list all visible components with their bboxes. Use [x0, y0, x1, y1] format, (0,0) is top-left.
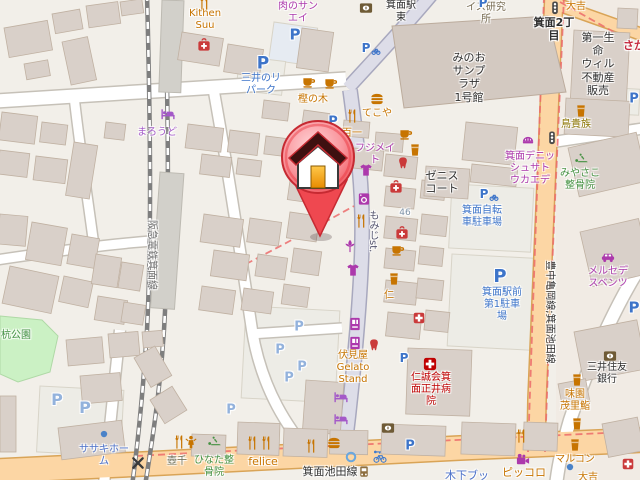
map-label-line: 46 [399, 208, 410, 219]
dentist-icon [396, 156, 411, 171]
vending-machine-icon [348, 336, 363, 351]
traffic-signal-icon [548, 1, 563, 16]
map-label-line: みやさこ [560, 168, 600, 180]
clothes-icon [346, 263, 361, 278]
map-label-line: 目 [534, 29, 575, 42]
map-label-line: 東 [386, 12, 416, 24]
map-label-line: ム [79, 456, 129, 468]
parking-icon: P [51, 392, 63, 408]
map-label-line: 命 [582, 44, 615, 57]
map-label: みやさこ整骨院 [560, 168, 600, 192]
map-label: マルコン [555, 454, 595, 466]
map-label-line: 鳥貴族 [561, 119, 591, 131]
map-label-line: 1号館 [453, 91, 486, 104]
map-label-line: ラザ [453, 77, 486, 90]
map-label: 仁 [384, 290, 394, 302]
map-label: 三井住友銀行 [587, 362, 627, 386]
map-label-line: 販売 [582, 84, 615, 97]
map-label-line: ゼニス [426, 169, 459, 182]
map-label-line: まろうど [137, 127, 177, 139]
map-label-line: 茂里鮨 [560, 401, 590, 413]
parking-icon: P [629, 301, 640, 316]
map-label-line: 木下ブッ [445, 469, 489, 480]
fountain-icon [344, 450, 359, 465]
parking-icon: P [400, 352, 409, 364]
restaurant-icon [514, 429, 529, 444]
map-label-line: みのお [453, 51, 486, 64]
map-label-line: 大吉 [566, 1, 586, 13]
map-label: イス研究所 [466, 2, 506, 26]
cafe-icon [399, 126, 414, 141]
cafe-icon [324, 75, 339, 90]
map-label: 味園茂里鮨 [560, 389, 590, 413]
map-label-line: 整骨院 [560, 180, 600, 192]
map-label: 第一生命ウィル不動産販売 [582, 31, 615, 97]
parking-icon: P [257, 56, 269, 73]
bank-icon [381, 421, 396, 436]
cinema-icon [516, 453, 531, 468]
railway-crossing-icon [131, 456, 146, 471]
drink-icon [568, 438, 583, 453]
map-label: 大吉 [566, 1, 586, 13]
bus-stop-icon [357, 465, 372, 480]
vending-machine-icon [348, 317, 363, 332]
parking-icon: P [290, 28, 301, 43]
hotel-icon [161, 107, 176, 122]
clinic-icon [622, 458, 635, 471]
bicycle-icon [490, 193, 499, 202]
cafe-icon [391, 242, 406, 257]
drink-icon [387, 272, 402, 287]
map-label-line: Stand [337, 374, 370, 386]
map-label-line: Kithen [189, 8, 221, 20]
map-label: ササキホーム [79, 444, 129, 468]
map-label-line: メルセデ [588, 266, 628, 278]
parking-icon: P [479, 0, 488, 9]
map-label-line: 箕面駅前 [482, 287, 522, 299]
traffic-signal-icon [545, 131, 560, 146]
map-label-line: ササキホー [79, 444, 129, 456]
parking-bicycle-icon: P [480, 188, 489, 200]
map-label: さか [623, 39, 640, 52]
map-label-line: スベンツ [588, 278, 628, 290]
map-label: 箕面駅東 [386, 0, 416, 24]
bakery-icon [521, 133, 536, 148]
map-label-line: さか [623, 39, 640, 52]
restaurant-icon [245, 436, 260, 451]
map-label: 仁誠会箕面正井病院 [411, 372, 451, 408]
map-label: 大吉 [578, 472, 598, 480]
map-label-line: エイ [278, 13, 318, 25]
map-label-line: 銀行 [587, 374, 627, 386]
map-label-line: シュサト [505, 163, 555, 175]
parking-icon: P [629, 93, 639, 106]
map-label: みのおサンプラザ1号館 [453, 51, 486, 104]
cafe-icon [302, 74, 317, 89]
map-label-line: 仁 [384, 290, 394, 302]
fastfood-icon [327, 436, 342, 451]
map-label: 伏見屋GelatoStand [337, 350, 370, 386]
pharmacy-icon [389, 180, 404, 195]
map-label: 杭公園 [1, 330, 31, 342]
map-label-line: 場 [482, 311, 522, 323]
map-label-line: ウィル [582, 57, 615, 70]
map-label: 三井のリパーク [241, 73, 281, 97]
map-label-line: マルコン [555, 454, 595, 466]
person-icon [184, 435, 199, 450]
parking-icon: P [294, 321, 304, 334]
map-label: 箕面デニッシュサトウカエデ [505, 151, 555, 187]
drink-icon [570, 417, 585, 432]
map-label-line: 阪急電鉄箕面線 [145, 220, 157, 290]
parking-icon: P [297, 361, 307, 374]
map-label-line: 箕面池田線 [303, 465, 358, 478]
map-label: 箕面駅前第1駐車場 [482, 287, 522, 323]
map-label-line: 大吉 [578, 472, 598, 480]
hotel-icon [334, 412, 349, 427]
map-label-line: 三井のリ [241, 73, 281, 85]
pharmacy-icon [395, 226, 410, 241]
pharmacy-icon [197, 38, 212, 53]
map-label-line: ウカエデ [505, 175, 555, 187]
parking-icon: P [284, 372, 294, 385]
map-label-line: ひなた整 [194, 455, 234, 467]
map-label: felice [248, 455, 278, 468]
hospital-icon [423, 357, 438, 372]
map-label: 壺千 [167, 456, 187, 468]
map-label-line: サンプ [453, 64, 486, 77]
parking-bicycle-icon: P [362, 42, 371, 54]
dot-icon [97, 427, 112, 442]
map-label-line: 壺千 [167, 456, 187, 468]
map-label: 木下ブッ [445, 469, 489, 480]
map-label: ピッコロ [502, 466, 546, 479]
restaurant-icon [197, 0, 212, 11]
house-location-pin[interactable] [263, 96, 373, 242]
massage-icon [207, 435, 222, 450]
map-label-line: Suu [189, 20, 221, 32]
map-label: 箕面池田線 [303, 465, 358, 478]
massage-icon [574, 152, 589, 167]
restaurant-icon [304, 439, 319, 454]
parking-icon: P [226, 404, 236, 417]
map-label-line: 仁誠会箕 [411, 372, 451, 384]
map-label: 豊中亀岡線;箕面池田線 [543, 260, 555, 363]
map-label: 箕面自転車駐車場 [462, 205, 502, 229]
drink-icon [574, 104, 589, 119]
map-label-line: 所 [466, 14, 506, 26]
car-dealer-icon [601, 250, 616, 265]
parking-icon: P [405, 440, 415, 453]
map-label-line: イス研究 [466, 2, 506, 14]
parking-icon: P [275, 344, 285, 357]
bicycle-icon [372, 47, 381, 56]
map-label: KithenSuu [189, 8, 221, 32]
map-label-line: felice [248, 455, 278, 468]
bank-icon [603, 349, 618, 364]
map-label-line: 車駐車場 [462, 217, 502, 229]
hotel-icon [334, 390, 349, 405]
map-label-line: コート [426, 182, 459, 195]
map-label-line: ピッコロ [502, 466, 546, 479]
map-label-line: 豊中亀岡線;箕面池田線 [543, 260, 555, 363]
drink-icon [570, 373, 585, 388]
map-label-line: 箕面2丁 [534, 16, 575, 29]
bicycle-rental-icon [373, 450, 388, 465]
map-label: 箕面2丁目 [534, 16, 575, 42]
map-label-line: 味園 [560, 389, 590, 401]
map-label: まろうど [137, 127, 177, 139]
restaurant-icon [172, 435, 187, 450]
parking-icon: P [493, 268, 506, 286]
map-label-line: 肉のサン [278, 1, 318, 13]
drink-icon [408, 143, 423, 158]
map-label-line: 第一生 [582, 31, 615, 44]
map-label: 鳥貴族 [561, 119, 591, 131]
map-label: ひなた整骨院 [194, 455, 234, 479]
map-label-line: 不動産 [582, 71, 615, 84]
map-label-line: 院 [411, 396, 451, 408]
map-label: 阪急電鉄箕面線 [145, 220, 157, 290]
map-label-line: 骨院 [194, 467, 234, 479]
map-label-line: 箕面自転 [462, 205, 502, 217]
map-label-line: 杭公園 [1, 330, 31, 342]
map-label-line: 伏見屋 [337, 350, 370, 362]
map-label-line: 第1駐車 [482, 299, 522, 311]
map-label-line: 三井住友 [587, 362, 627, 374]
map-label: ゼニスコート [426, 169, 459, 195]
map-label: 肉のサンエイ [278, 1, 318, 25]
map-canvas[interactable]: KithenSuu肉のサンエイ箕面駅東イス研究所大吉箕面2丁目第一生命ウィル不動… [0, 0, 640, 480]
dentist-icon [367, 338, 382, 353]
parking-icon: P [79, 400, 91, 416]
dot-icon [563, 460, 578, 475]
map-label-line: 箕面駅 [386, 0, 416, 12]
bank-icon [359, 1, 374, 16]
map-label-line: Gelato [337, 362, 370, 374]
clinic-icon [413, 312, 426, 325]
map-label-line: 面正井病 [411, 384, 451, 396]
restaurant-icon [259, 436, 274, 451]
map-label: 46 [399, 208, 410, 219]
map-label: メルセデスベンツ [588, 266, 628, 290]
map-label-line: 箕面デニッ [505, 151, 555, 163]
